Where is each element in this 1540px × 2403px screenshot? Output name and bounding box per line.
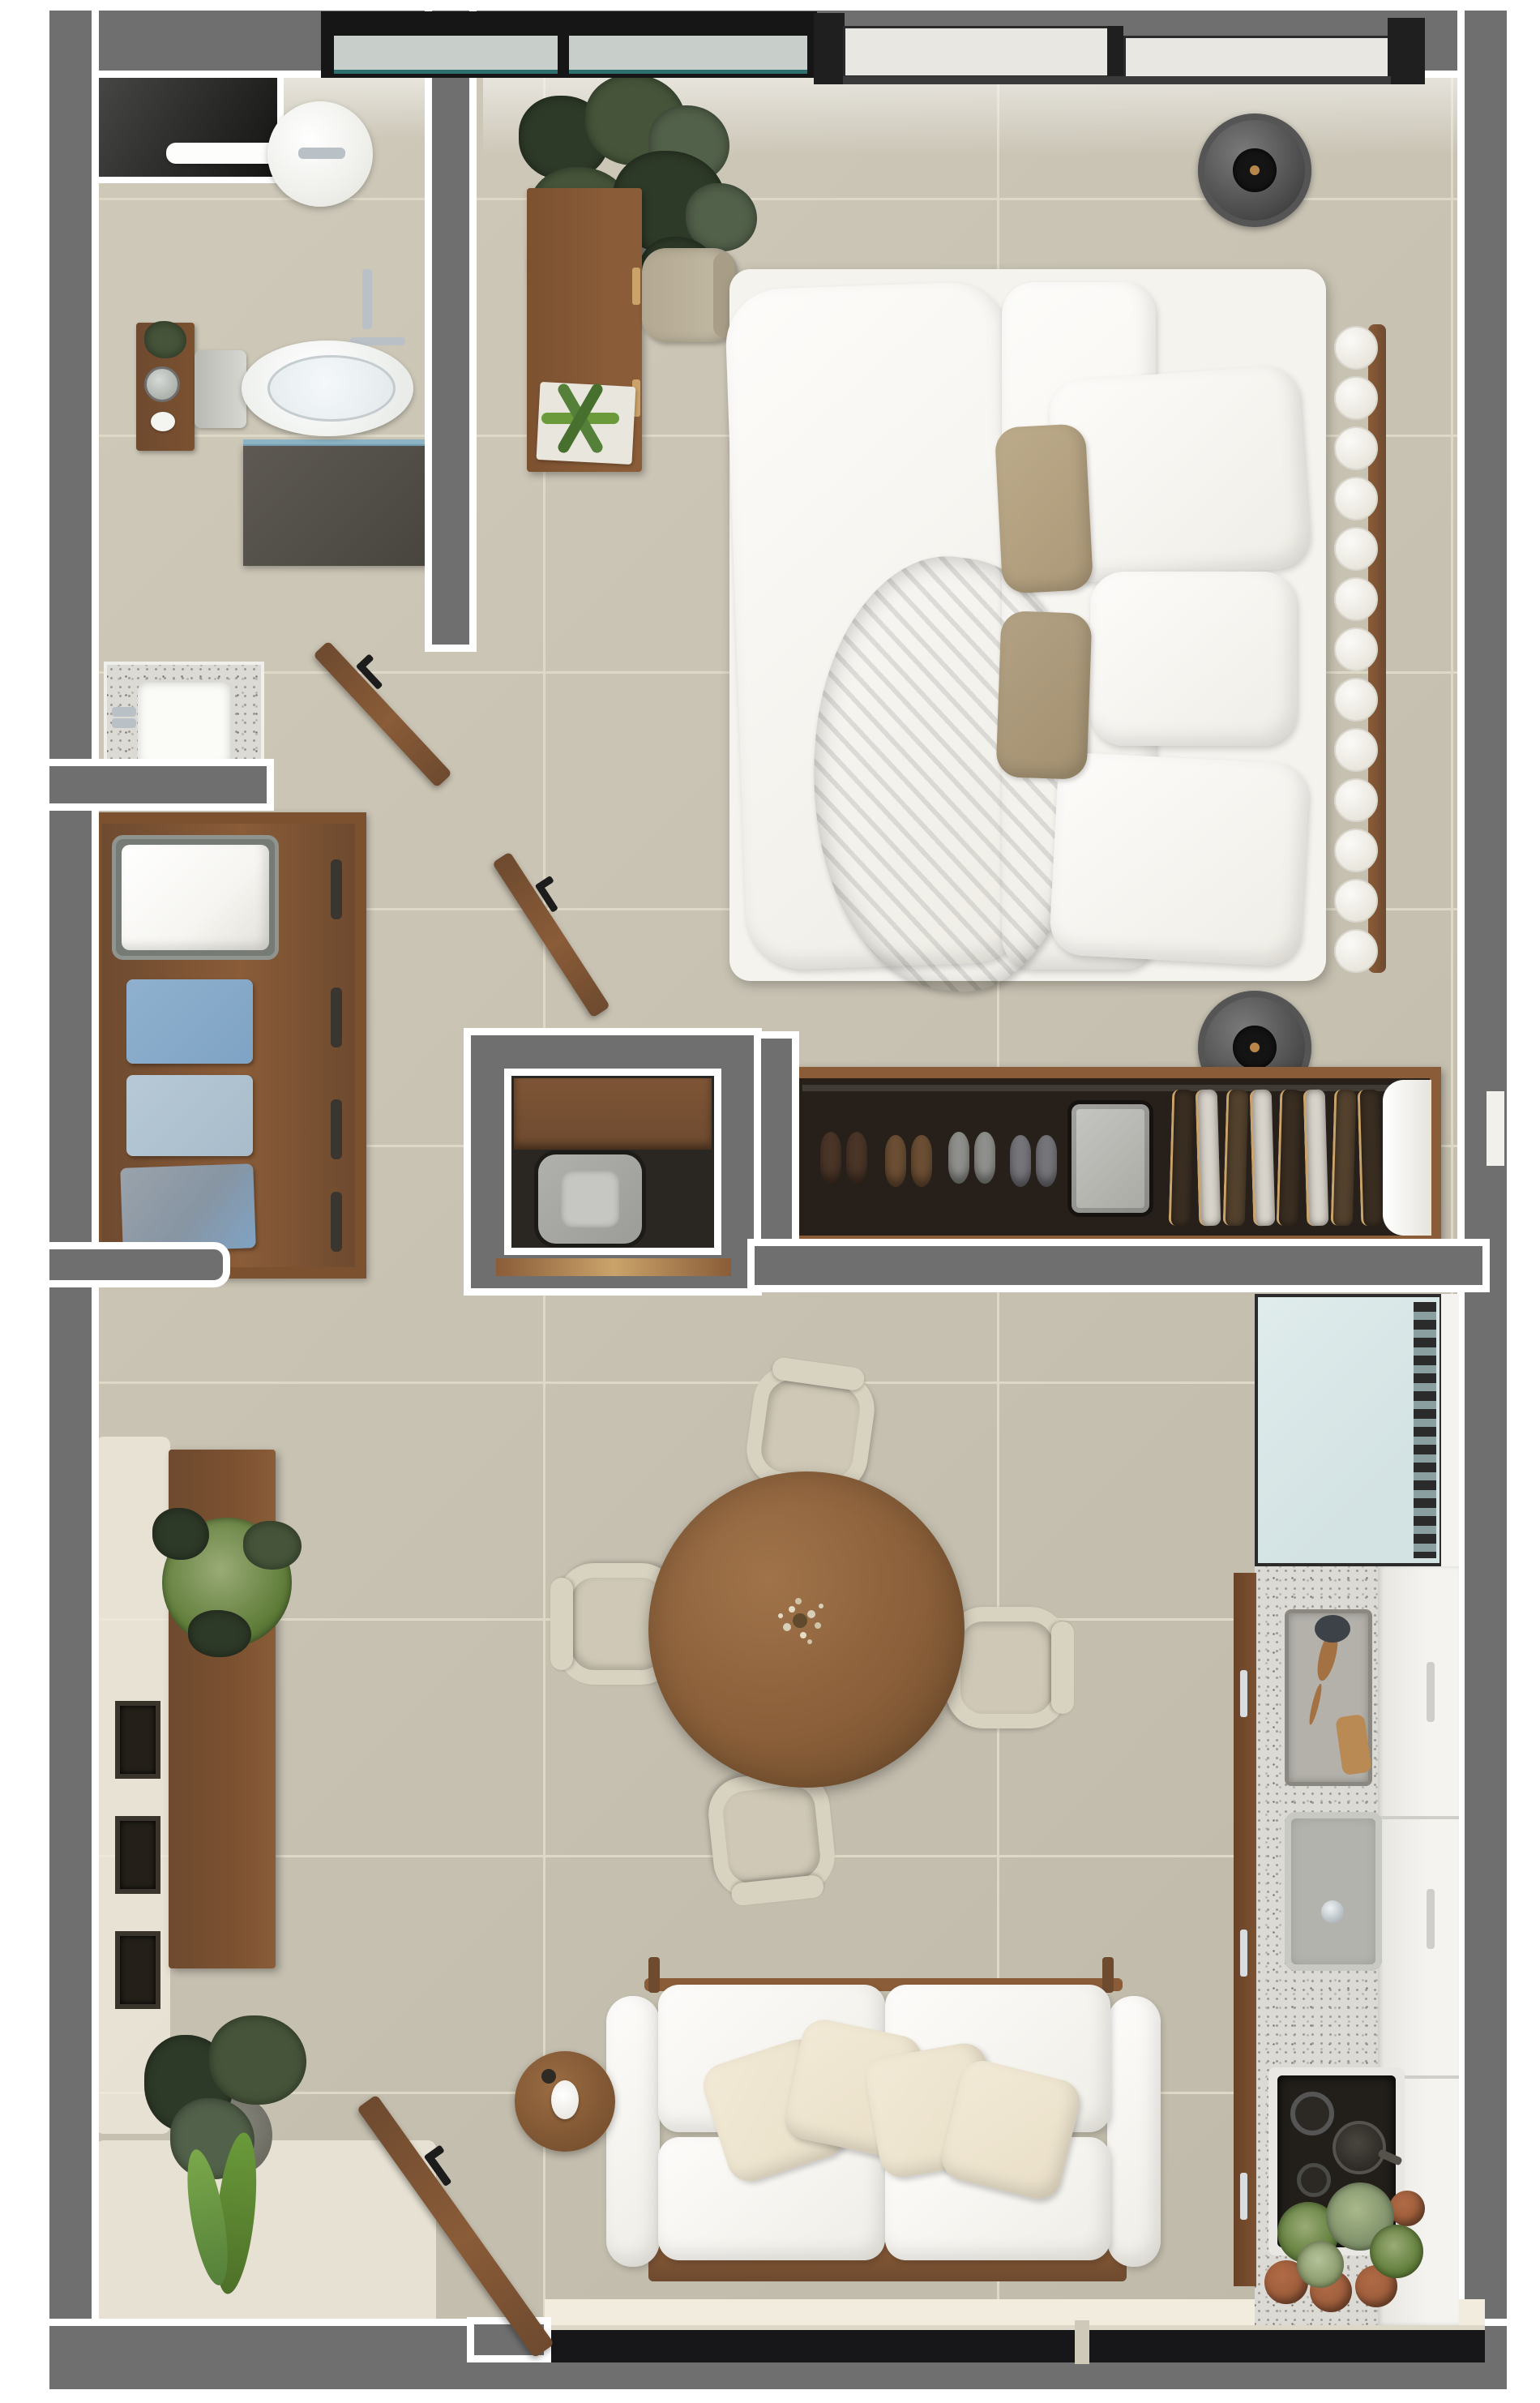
shoe [1010, 1135, 1031, 1187]
kitchen-plant [1297, 2241, 1344, 2288]
succulent-leaf [188, 1610, 251, 1657]
shower-head-spout [298, 148, 345, 159]
bed-pillow-tan-bottom [995, 610, 1092, 780]
bedside-speaker-top [1198, 114, 1311, 227]
vanity-faucet [112, 707, 136, 717]
headboard-bobble [1334, 527, 1378, 571]
towel-graylue [120, 1163, 256, 1253]
bedroom-window-pane [843, 26, 1114, 78]
sofa-hook [1102, 1957, 1114, 1993]
bed-pillow-lumbar [1090, 572, 1297, 746]
headboard-bobble [1334, 829, 1378, 872]
headboard-bobble [1334, 477, 1378, 520]
headboard-bobble [1334, 326, 1378, 370]
toilet-tank [195, 350, 246, 428]
linen-slot-3 [331, 1099, 342, 1159]
shower-counter [243, 444, 456, 566]
succulent-leaf [243, 1521, 302, 1570]
fridge-vent-grille [1414, 1302, 1436, 1558]
shoe [948, 1132, 969, 1184]
garment [1249, 1090, 1275, 1227]
round-mirror [144, 366, 180, 402]
counter-edge-handle [1240, 1930, 1247, 1977]
garment [1222, 1090, 1248, 1227]
pan [1333, 2121, 1386, 2174]
sofa-armrest-left [606, 1996, 660, 2267]
succulent-leaf [152, 1508, 209, 1560]
corner-plant-leaf [209, 2015, 306, 2105]
bathroom-window-pane [334, 36, 558, 74]
laundry-threshold [496, 1258, 731, 1276]
sofa-armrest-right [1107, 1996, 1161, 2267]
candle [551, 2080, 579, 2119]
cabinet-handle [1427, 1662, 1435, 1722]
garment [1169, 1090, 1195, 1227]
entry-light-patch [96, 2140, 436, 2327]
cabinet-seam [1378, 1816, 1459, 1819]
chair-back [1051, 1621, 1074, 1714]
washer-lid [561, 1171, 619, 1227]
garment [1357, 1090, 1383, 1227]
bedroom-window-sill [843, 76, 1391, 84]
headboard-bobble [1334, 376, 1378, 420]
wardrobe-end-panel [1383, 1080, 1431, 1236]
towel-blue [126, 979, 253, 1064]
dining-table [648, 1471, 965, 1788]
wall-bathroom-right [425, 3, 477, 652]
wall-exterior-right [1457, 3, 1514, 2397]
bedroom-window-block [1388, 18, 1425, 84]
toilet-seat [267, 355, 396, 422]
headboard-bobble [1334, 728, 1378, 772]
aloe-plant [541, 379, 619, 457]
linen-slot-1 [331, 859, 342, 919]
shoe [820, 1132, 841, 1184]
kitchen-sink [1285, 1812, 1382, 1971]
shower-fixture-bar [362, 269, 372, 329]
soap-dish [151, 412, 175, 431]
kitchen-plant [1370, 2225, 1423, 2278]
hanging-clothes [1170, 1090, 1381, 1226]
speaker-dot [1250, 1043, 1260, 1052]
table-centerpiece [793, 1613, 807, 1628]
wall-below-wardrobe [747, 1239, 1490, 1292]
burner-small [1297, 2163, 1331, 2197]
wall-frame [115, 1816, 160, 1894]
shoe [885, 1135, 906, 1187]
desk-handle [632, 268, 640, 305]
right-wall-window [1487, 1091, 1504, 1166]
garment [1330, 1090, 1356, 1227]
laundry-shelf [514, 1078, 712, 1150]
wall-laundry-right-filler [754, 1031, 799, 1255]
headboard-bobble [1334, 577, 1378, 621]
storage-bin [1072, 1104, 1149, 1213]
bed-pillow-white-bottom [1049, 752, 1311, 967]
shower-glass-edge [243, 439, 456, 446]
headboard-bobble [1334, 678, 1378, 722]
shoe [846, 1132, 867, 1184]
shoe [911, 1135, 932, 1187]
bedroom-window-block [814, 13, 845, 84]
headboard-bobble [1334, 426, 1378, 470]
towel-lightblue [126, 1075, 253, 1156]
shelf-plant [144, 321, 186, 358]
bedroom-window-pane [1123, 36, 1391, 81]
bottom-window-glass [545, 2325, 1485, 2362]
headboard-bobble [1334, 879, 1378, 923]
bathroom-window-pane [569, 36, 807, 74]
counter-edge-handle [1240, 1670, 1247, 1717]
chair-back [550, 1578, 573, 1670]
linen-slot-4 [331, 1192, 342, 1252]
floor-plan [0, 0, 1540, 2403]
sofa-hook [648, 1957, 660, 1993]
garment [1277, 1090, 1303, 1227]
wall-hall-stub [42, 1242, 230, 1287]
linen-slot-2 [331, 987, 342, 1047]
wall-bathroom-bottom [42, 759, 274, 811]
dining-chair-bottom [705, 1768, 839, 1902]
side-table-item [541, 2069, 556, 2084]
headboard-bobble [1334, 778, 1378, 822]
burner [1290, 2092, 1334, 2135]
wall-exterior-left [42, 3, 99, 2397]
wall-frame [115, 1701, 160, 1779]
cabinet-handle [1427, 1889, 1435, 1949]
sink-faucet [1321, 1900, 1344, 1923]
bed-pillow-tan-top [995, 423, 1094, 594]
bottom-window-mullion [1075, 2320, 1089, 2364]
headboard-bobble [1334, 929, 1378, 973]
towel-white [122, 845, 269, 950]
terracotta-pot [1389, 2191, 1425, 2226]
dark-bowl [1315, 1615, 1350, 1643]
wall-frame [115, 1931, 160, 2009]
vanity-sink [138, 683, 230, 767]
shoe [1036, 1135, 1057, 1187]
fridge-side-panel [1441, 1294, 1459, 1566]
speaker-dot [1250, 165, 1260, 175]
headboard-bobble [1334, 628, 1378, 671]
counter-edge-handle [1240, 2173, 1247, 2220]
shoe [974, 1132, 995, 1184]
garment [1303, 1090, 1329, 1227]
garment [1196, 1090, 1221, 1227]
